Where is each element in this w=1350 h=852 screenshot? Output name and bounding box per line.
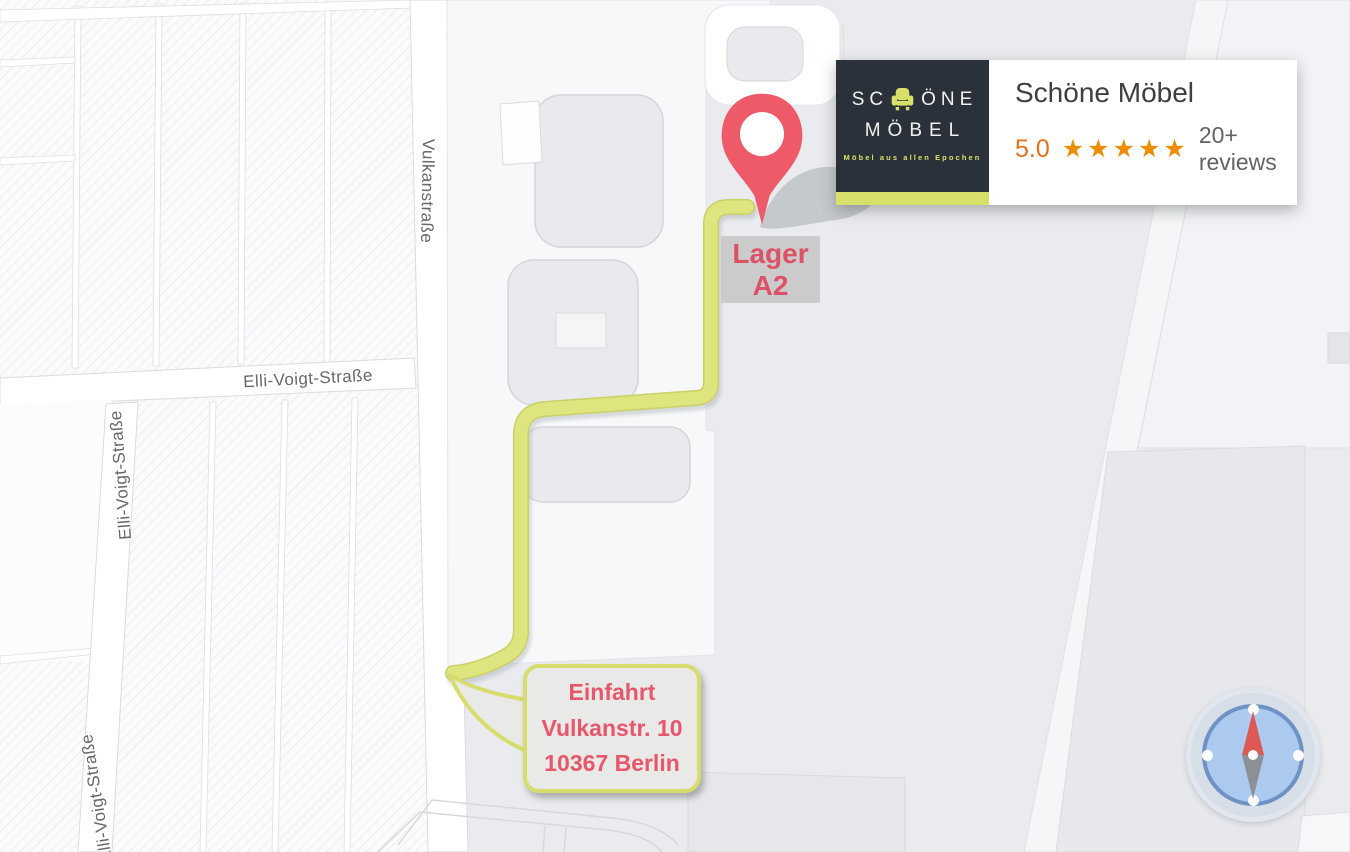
compass-dot-west bbox=[1202, 750, 1213, 761]
entrance-line2: Vulkanstr. 10 bbox=[541, 711, 682, 747]
logo-name-line2: MÖBEL bbox=[865, 120, 967, 142]
logo-name-pre: SC bbox=[852, 89, 888, 111]
rating-row: 5.0 ★★★★★ 20+ reviews bbox=[1015, 122, 1297, 176]
business-card[interactable]: SC ÖNE MÖBEL Möbel aus allen Epochen bbox=[836, 60, 1297, 205]
business-card-body: Schöne Möbel 5.0 ★★★★★ 20+ reviews bbox=[989, 60, 1297, 205]
pin-hole bbox=[740, 112, 784, 156]
entrance-callout: Einfahrt Vulkanstr. 10 10367 Berlin bbox=[523, 664, 701, 793]
rating-score: 5.0 bbox=[1015, 135, 1050, 164]
reviews-link[interactable]: 20+ reviews bbox=[1199, 122, 1297, 176]
road-loop-island bbox=[727, 27, 803, 81]
warehouse-label-line1: Lager bbox=[732, 238, 808, 269]
building-small-mid2 bbox=[556, 313, 606, 348]
logo-tagline: Möbel aus allen Epochen bbox=[844, 153, 982, 162]
compass-needle-icon bbox=[1232, 709, 1274, 801]
compass-dot-east bbox=[1293, 750, 1304, 761]
map-pin[interactable] bbox=[714, 88, 810, 232]
business-logo: SC ÖNE MÖBEL Möbel aus allen Epochen bbox=[836, 60, 989, 205]
map-viewport[interactable]: Vulkanstraße Elli-Voigt-Straße Elli-Voig… bbox=[0, 0, 1350, 852]
entrance-line3: 10367 Berlin bbox=[544, 746, 680, 782]
entrance-line1: Einfahrt bbox=[569, 675, 656, 711]
rating-stars-icon: ★★★★★ bbox=[1062, 134, 1189, 164]
street-label-vulkanstrasse: Vulkanstraße bbox=[416, 106, 439, 276]
armchair-icon bbox=[889, 86, 916, 113]
building-small-right bbox=[1328, 333, 1350, 363]
business-title: Schöne Möbel bbox=[1015, 77, 1297, 109]
warehouse-label: Lager A2 bbox=[721, 236, 820, 303]
logo-name-line1: SC ÖNE bbox=[850, 86, 976, 113]
logo-accent-bar bbox=[836, 192, 989, 205]
building-corner-br bbox=[1298, 812, 1350, 852]
logo-name-post: ÖNE bbox=[921, 89, 977, 111]
building-bottom-mid bbox=[688, 772, 905, 852]
compass-control[interactable] bbox=[1186, 688, 1320, 822]
building-small-mid bbox=[500, 101, 542, 165]
warehouse-label-line2: A2 bbox=[753, 270, 789, 301]
